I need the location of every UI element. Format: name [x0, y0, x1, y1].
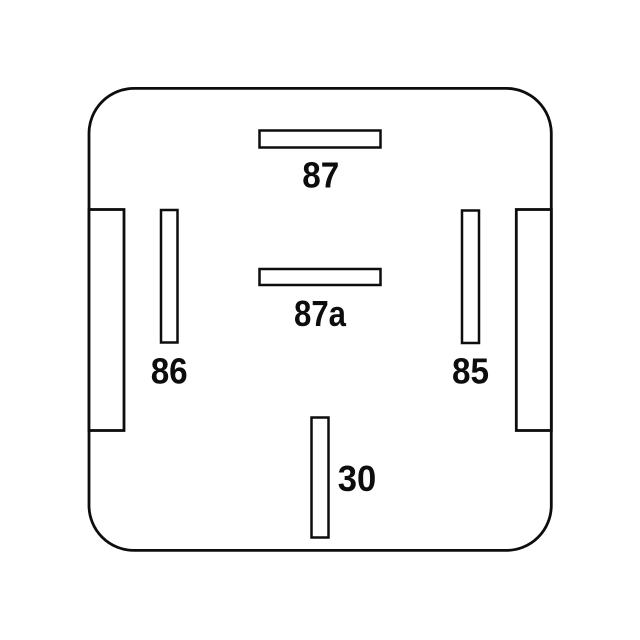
- svg-text:30: 30: [338, 458, 377, 499]
- svg-text:87: 87: [302, 154, 339, 195]
- svg-text:87a: 87a: [294, 293, 347, 334]
- svg-text:85: 85: [452, 351, 489, 392]
- svg-text:86: 86: [151, 351, 188, 392]
